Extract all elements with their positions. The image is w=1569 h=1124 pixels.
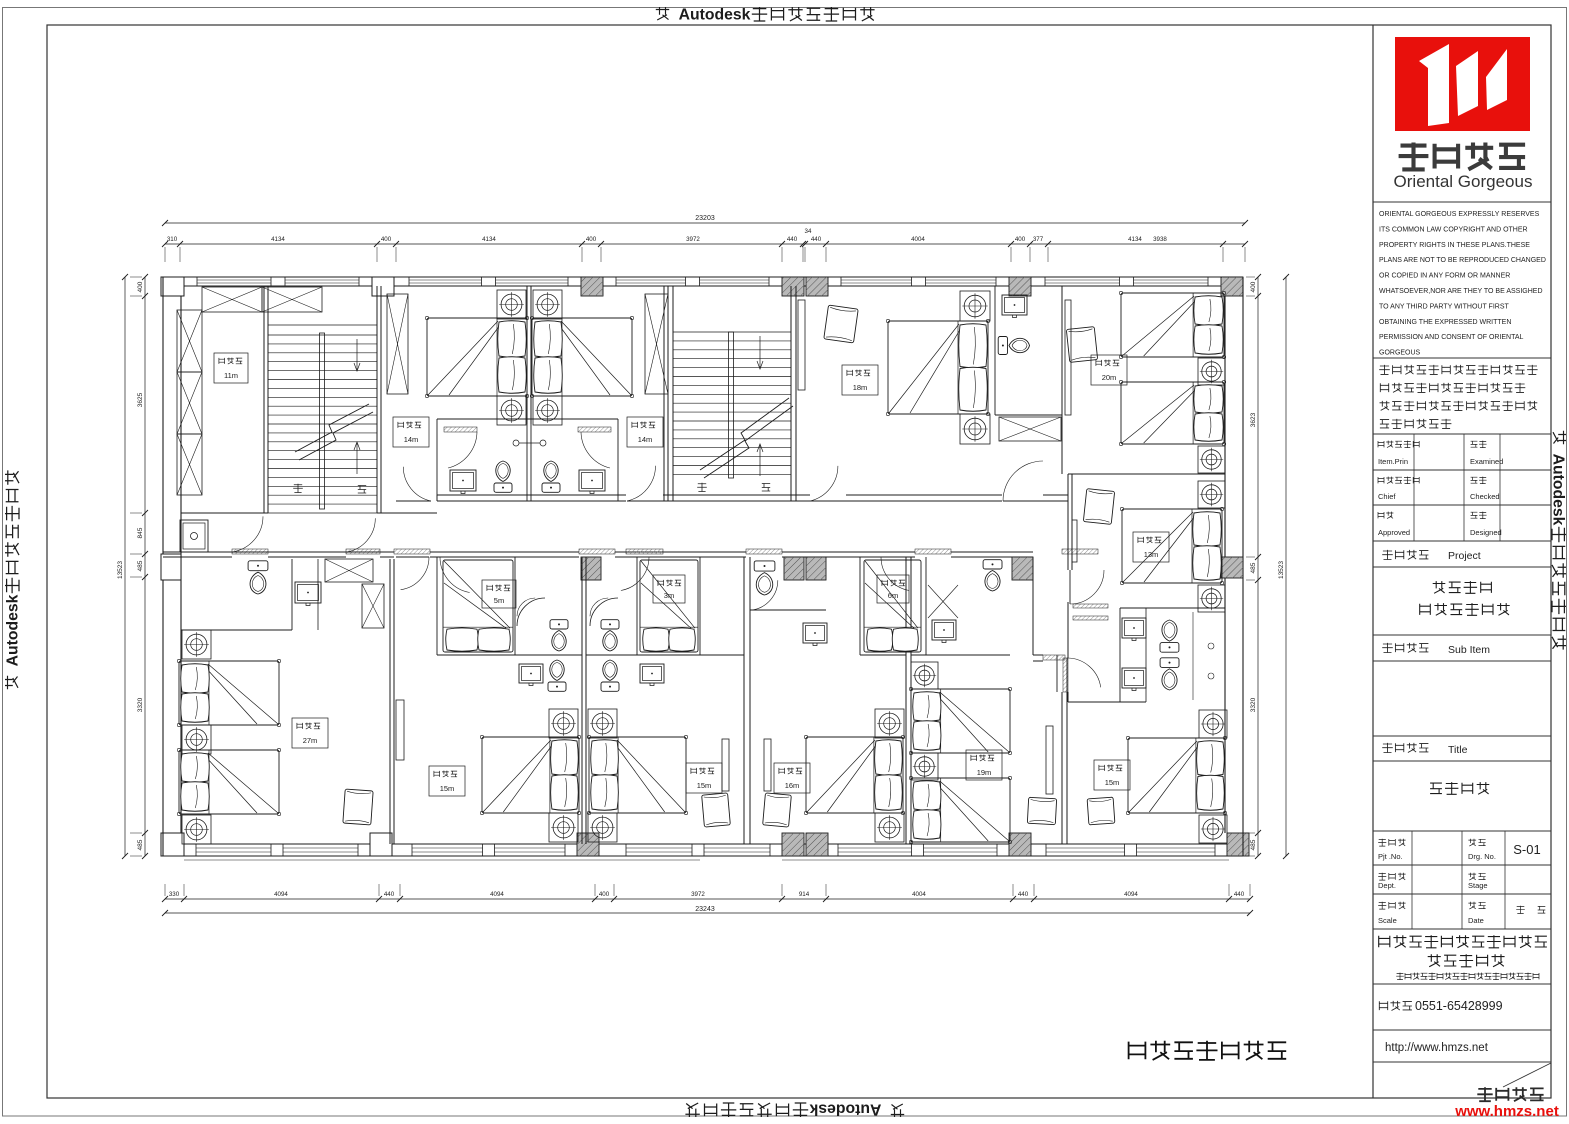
svg-text:14m: 14m — [404, 435, 419, 444]
svg-text:310: 310 — [167, 236, 178, 243]
svg-text:23203: 23203 — [695, 215, 715, 222]
svg-text:ITS COMMON LAW COPYRIGHT AND O: ITS COMMON LAW COPYRIGHT AND OTHER — [1379, 226, 1528, 233]
svg-text:400: 400 — [1015, 236, 1026, 243]
svg-text:Sub Item: Sub Item — [1448, 644, 1490, 656]
svg-text:Oriental Gorgeous: Oriental Gorgeous — [1394, 172, 1533, 191]
svg-text:3320: 3320 — [137, 697, 144, 712]
svg-text:Stage: Stage — [1468, 881, 1488, 890]
svg-text:485: 485 — [137, 560, 144, 571]
svg-text:6m: 6m — [888, 591, 898, 600]
svg-text:http://www.hmzs.net: http://www.hmzs.net — [1385, 1042, 1489, 1054]
svg-text:13523: 13523 — [1278, 561, 1285, 579]
svg-text:Chief: Chief — [1378, 492, 1396, 501]
svg-text:15m: 15m — [1105, 778, 1120, 787]
svg-text:15m: 15m — [697, 781, 712, 790]
svg-text:ORIENTAL GORGEOUS EXPRESSLY RE: ORIENTAL GORGEOUS EXPRESSLY RESERVES — [1379, 211, 1540, 218]
svg-text:4134: 4134 — [271, 236, 285, 243]
svg-text:5m: 5m — [494, 596, 504, 605]
svg-text:Dept.: Dept. — [1378, 881, 1396, 890]
svg-text:0551-65428999: 0551-65428999 — [1415, 999, 1503, 1013]
svg-text:Designed: Designed — [1470, 528, 1502, 537]
svg-text:4004: 4004 — [912, 891, 926, 898]
svg-text:34: 34 — [805, 228, 812, 235]
svg-text:TO ANY THIRD PARTY WITHOUT FIR: TO ANY THIRD PARTY WITHOUT FIRST — [1379, 303, 1510, 310]
svg-text:440: 440 — [787, 236, 798, 243]
svg-text:13m: 13m — [1144, 550, 1159, 559]
svg-text:485: 485 — [1250, 562, 1257, 573]
svg-text:23243: 23243 — [695, 906, 715, 913]
svg-text:15m: 15m — [440, 784, 455, 793]
svg-text:Autodesk: Autodesk — [679, 7, 751, 24]
svg-text:GORGEOUS: GORGEOUS — [1379, 350, 1421, 357]
svg-text:18m: 18m — [853, 383, 868, 392]
svg-text:440: 440 — [1234, 891, 1245, 898]
svg-text:20m: 20m — [1102, 373, 1117, 382]
svg-text:Examined: Examined — [1470, 457, 1503, 466]
svg-text:3m: 3m — [664, 591, 674, 600]
svg-text:19m: 19m — [977, 768, 992, 777]
svg-text:16m: 16m — [785, 781, 800, 790]
svg-text:WHATSOEVER,NOR ARE THEY TO BE: WHATSOEVER,NOR ARE THEY TO BE ASSIGHED — [1379, 288, 1543, 295]
svg-text:Item.Prin: Item.Prin — [1378, 457, 1408, 466]
svg-text:4094: 4094 — [1124, 891, 1138, 898]
svg-text:4004: 4004 — [911, 236, 925, 243]
svg-text:Autodesk: Autodesk — [1549, 454, 1566, 526]
svg-text:3623: 3623 — [1250, 412, 1257, 427]
svg-text:27m: 27m — [303, 736, 318, 745]
svg-text:3972: 3972 — [686, 236, 700, 243]
svg-text:3320: 3320 — [1250, 697, 1257, 712]
svg-text:Drg. No.: Drg. No. — [1468, 852, 1496, 861]
svg-text:377: 377 — [1033, 236, 1044, 243]
svg-text:400: 400 — [586, 236, 597, 243]
svg-text:OBTAINING THE EXPRESSED WRITTE: OBTAINING THE EXPRESSED WRITTEN — [1379, 319, 1511, 326]
svg-text:485: 485 — [137, 839, 144, 850]
svg-text:845: 845 — [137, 527, 144, 538]
svg-text:400: 400 — [599, 891, 610, 898]
svg-text:S-01: S-01 — [1513, 842, 1540, 857]
svg-text:4134: 4134 — [482, 236, 496, 243]
svg-text:PERMISSION AND CONSENT OF ORIE: PERMISSION AND CONSENT OF ORIENTAL — [1379, 334, 1524, 341]
svg-text:Date: Date — [1468, 916, 1484, 925]
svg-text:Scale: Scale — [1378, 916, 1397, 925]
svg-text:330: 330 — [169, 891, 180, 898]
svg-text:3625: 3625 — [137, 392, 144, 407]
svg-text:485: 485 — [1250, 839, 1257, 850]
svg-text:Title: Title — [1448, 744, 1468, 756]
svg-text:4134: 4134 — [1128, 236, 1142, 243]
svg-text:440: 440 — [1018, 891, 1029, 898]
svg-text:14m: 14m — [638, 435, 653, 444]
svg-text:440: 440 — [811, 236, 822, 243]
svg-text:Approved: Approved — [1378, 528, 1410, 537]
svg-text:Checked: Checked — [1470, 492, 1500, 501]
svg-text:13523: 13523 — [117, 561, 124, 579]
svg-text:3938: 3938 — [1153, 236, 1167, 243]
svg-text:3972: 3972 — [691, 891, 705, 898]
svg-text:Autodesk: Autodesk — [809, 1100, 881, 1117]
svg-text:Pjt .No.: Pjt .No. — [1378, 852, 1403, 861]
svg-text:400: 400 — [137, 281, 144, 292]
svg-text:440: 440 — [384, 891, 395, 898]
svg-text:4094: 4094 — [490, 891, 504, 898]
svg-text:11m: 11m — [224, 371, 238, 380]
svg-text:914: 914 — [799, 891, 810, 898]
svg-text:OR COPIED IN ANY FORM OR MANNE: OR COPIED IN ANY FORM OR MANNER — [1379, 273, 1510, 280]
svg-text:Autodesk: Autodesk — [5, 594, 22, 666]
svg-text:4094: 4094 — [274, 891, 288, 898]
svg-text:www.hmzs.net: www.hmzs.net — [1454, 1103, 1559, 1120]
svg-text:PROPERTY RIGHTS IN THESE PLANS: PROPERTY RIGHTS IN THESE PLANS.THESE — [1379, 242, 1530, 249]
svg-text:Project: Project — [1448, 550, 1481, 562]
svg-text:400: 400 — [1250, 281, 1257, 292]
svg-text:400: 400 — [381, 236, 392, 243]
svg-text:PLANS ARE NOT TO BE REPRODUCED: PLANS ARE NOT TO BE REPRODUCED CHANGED — [1379, 257, 1546, 264]
